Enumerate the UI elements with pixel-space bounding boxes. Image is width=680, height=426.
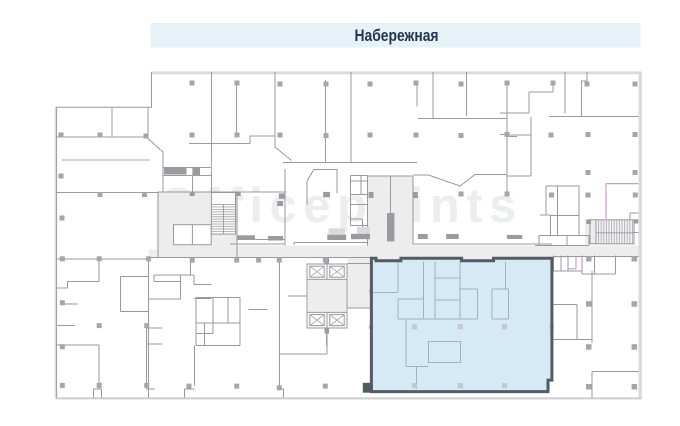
svg-text:Набережная: Набережная bbox=[355, 27, 439, 45]
